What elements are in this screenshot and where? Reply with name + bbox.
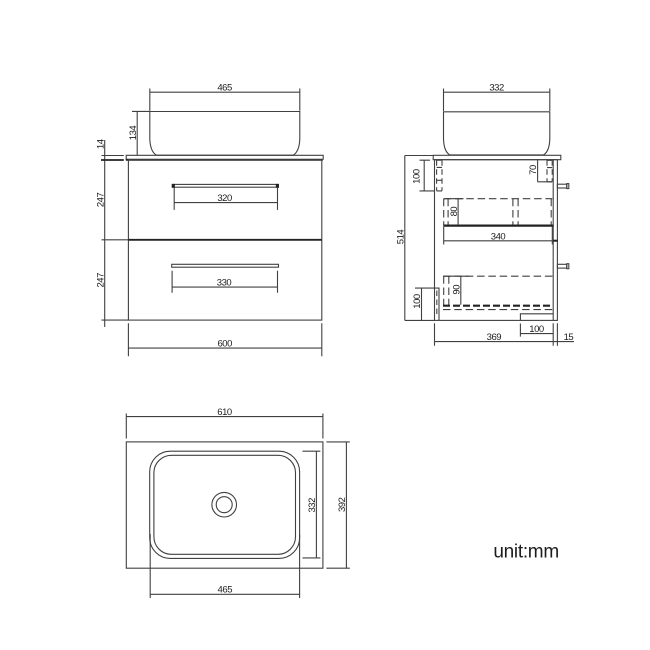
- svg-text:15: 15: [564, 332, 574, 343]
- svg-text:392: 392: [337, 497, 348, 512]
- svg-text:465: 465: [218, 585, 233, 596]
- svg-text:320: 320: [217, 193, 232, 204]
- svg-text:90: 90: [452, 285, 463, 295]
- svg-text:80: 80: [449, 207, 460, 217]
- svg-text:70: 70: [528, 165, 539, 175]
- svg-text:100: 100: [412, 294, 423, 309]
- svg-text:465: 465: [217, 83, 232, 94]
- svg-text:247: 247: [95, 273, 106, 288]
- svg-text:514: 514: [395, 230, 406, 245]
- svg-text:332: 332: [489, 83, 504, 94]
- svg-text:14: 14: [95, 139, 106, 149]
- svg-text:134: 134: [128, 126, 139, 141]
- svg-text:369: 369: [487, 332, 502, 343]
- svg-text:610: 610: [217, 407, 232, 418]
- svg-text:332: 332: [307, 498, 318, 513]
- svg-text:100: 100: [529, 324, 544, 335]
- svg-text:247: 247: [95, 192, 106, 207]
- svg-text:600: 600: [217, 339, 232, 350]
- svg-text:340: 340: [491, 231, 506, 242]
- svg-text:330: 330: [217, 278, 232, 289]
- svg-text:100: 100: [411, 169, 422, 184]
- svg-text:unit:mm: unit:mm: [493, 542, 558, 563]
